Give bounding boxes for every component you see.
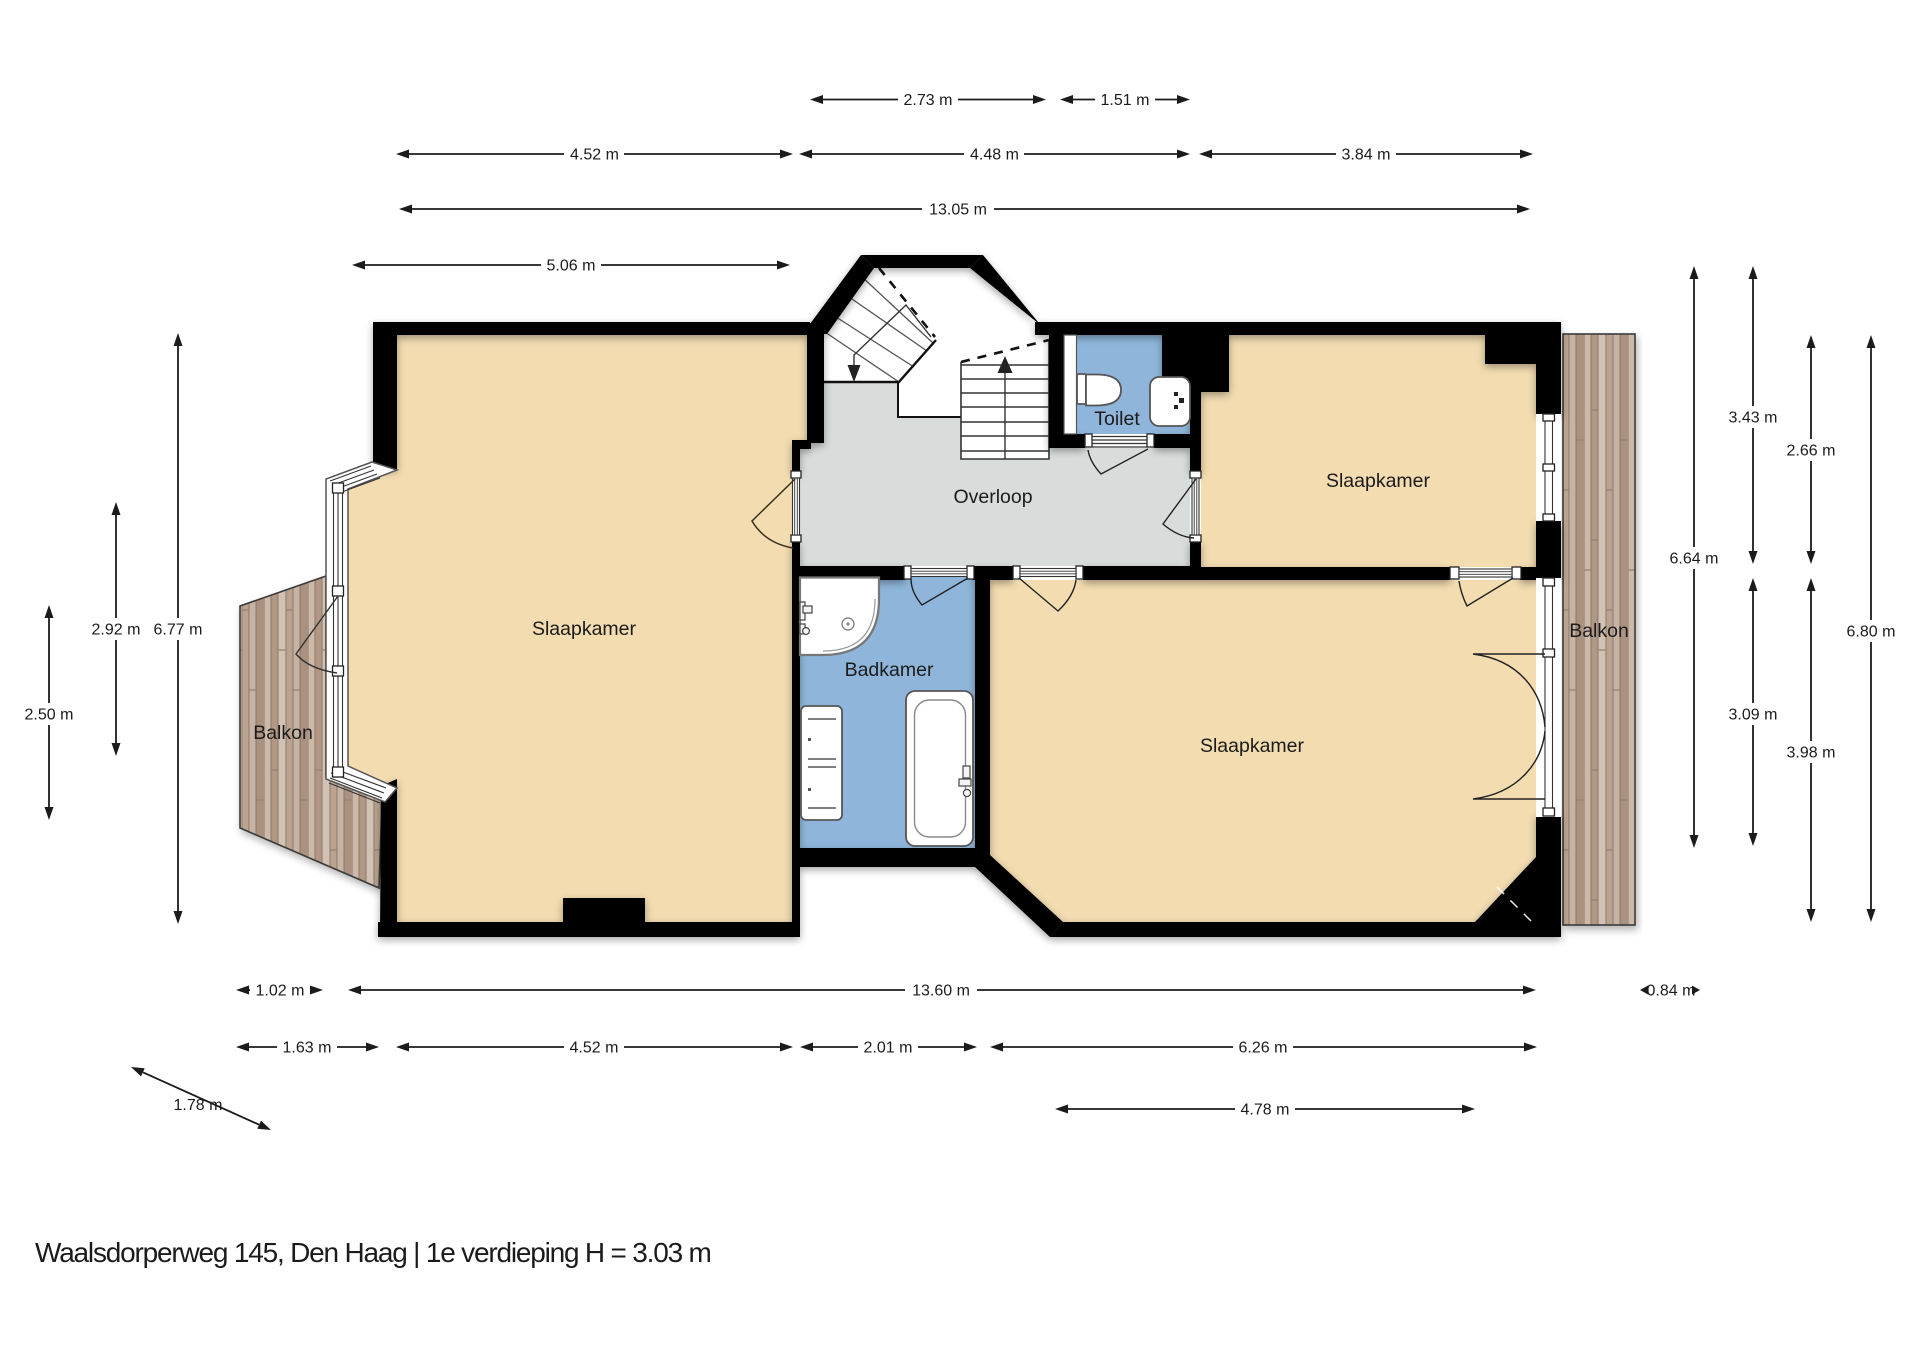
svg-text:2.92 m: 2.92 m — [92, 622, 141, 639]
svg-text:1.78 m: 1.78 m — [174, 1097, 223, 1114]
svg-text:1.51 m: 1.51 m — [1101, 92, 1150, 109]
svg-text:6.80 m: 6.80 m — [1847, 624, 1896, 641]
svg-text:3.09 m: 3.09 m — [1729, 707, 1778, 724]
svg-text:Overloop: Overloop — [953, 486, 1032, 508]
svg-text:6.77 m: 6.77 m — [154, 622, 203, 639]
svg-text:Badkamer: Badkamer — [845, 659, 934, 681]
svg-text:13.05 m: 13.05 m — [929, 202, 987, 219]
svg-text:Balkon: Balkon — [253, 722, 313, 744]
svg-text:1.63 m: 1.63 m — [283, 1040, 332, 1057]
svg-text:1.02 m: 1.02 m — [256, 983, 305, 1000]
svg-text:Balkon: Balkon — [1569, 620, 1629, 642]
svg-text:4.78 m: 4.78 m — [1241, 1102, 1290, 1119]
svg-text:4.48 m: 4.48 m — [970, 147, 1019, 164]
svg-text:Waalsdorperweg 145, Den Haag |: Waalsdorperweg 145, Den Haag | 1e verdie… — [35, 1237, 711, 1268]
svg-text:3.84 m: 3.84 m — [1342, 147, 1391, 164]
svg-text:5.06 m: 5.06 m — [547, 258, 596, 275]
svg-text:Slaapkamer: Slaapkamer — [532, 618, 637, 640]
svg-text:Slaapkamer: Slaapkamer — [1326, 470, 1431, 492]
svg-text:2.73 m: 2.73 m — [904, 92, 953, 109]
svg-text:13.60 m: 13.60 m — [912, 983, 970, 1000]
svg-text:3.43 m: 3.43 m — [1729, 410, 1778, 427]
svg-text:6.26 m: 6.26 m — [1239, 1040, 1288, 1057]
svg-text:Slaapkamer: Slaapkamer — [1200, 735, 1305, 757]
svg-text:Toilet: Toilet — [1094, 408, 1140, 430]
svg-text:0.84 m: 0.84 m — [1647, 983, 1696, 1000]
svg-text:2.50 m: 2.50 m — [25, 707, 74, 724]
svg-text:4.52 m: 4.52 m — [570, 147, 619, 164]
svg-text:6.64 m: 6.64 m — [1670, 551, 1719, 568]
svg-text:2.01 m: 2.01 m — [864, 1040, 913, 1057]
svg-text:4.52 m: 4.52 m — [570, 1040, 619, 1057]
svg-text:2.66 m: 2.66 m — [1787, 443, 1836, 460]
svg-text:3.98 m: 3.98 m — [1787, 745, 1836, 762]
